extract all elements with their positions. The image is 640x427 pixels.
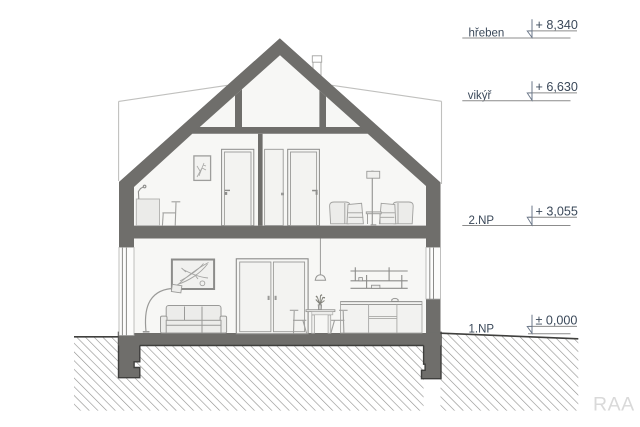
svg-text:+ 3,055: + 3,055 (536, 204, 578, 218)
svg-text:+ 8,340: + 8,340 (536, 18, 578, 32)
svg-text:± 0,000: ± 0,000 (536, 314, 578, 328)
svg-text:RAA: RAA (593, 394, 635, 416)
svg-text:1.NP: 1.NP (469, 323, 495, 335)
svg-text:+ 6,630: + 6,630 (536, 80, 578, 94)
